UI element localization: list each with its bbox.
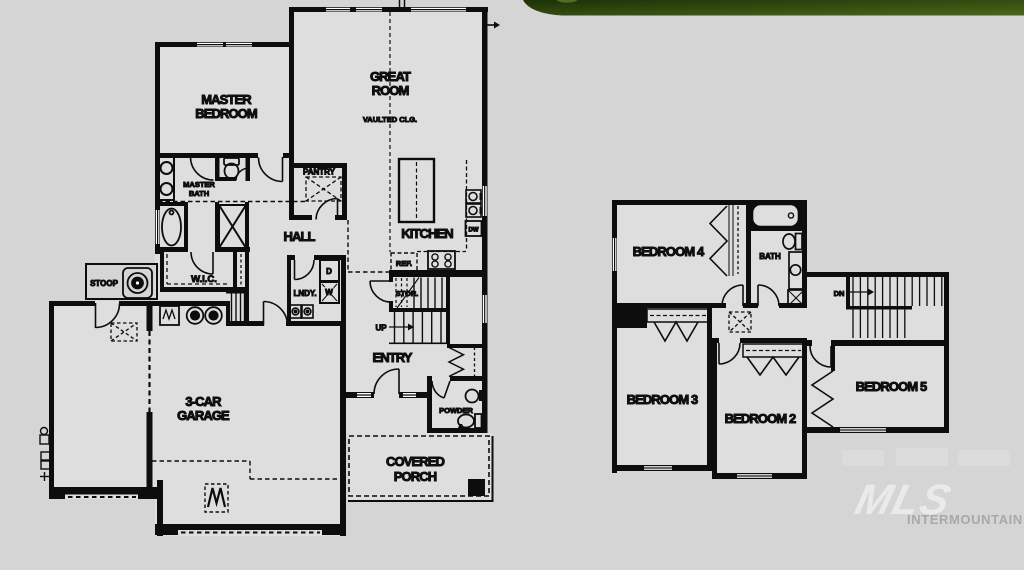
svg-text:UP: UP [375,324,387,333]
svg-text:PANTRY: PANTRY [303,168,336,177]
svg-text:ROOM: ROOM [372,83,409,98]
svg-text:COVERED: COVERED [386,454,445,469]
svg-text:W.I.C.: W.I.C. [191,274,217,285]
svg-text:DW: DW [469,228,479,234]
svg-text:MASTER: MASTER [201,92,252,107]
svg-text:STOOP: STOOP [90,279,119,288]
svg-text:INTERMOUNTAIN: INTERMOUNTAIN [907,512,1023,527]
svg-text:ENTRY: ENTRY [372,350,412,365]
svg-text:W: W [325,288,333,297]
svg-text:BEDROOM 2: BEDROOM 2 [725,411,796,426]
svg-text:MASTER: MASTER [183,180,215,189]
svg-text:BEDROOM: BEDROOM [195,106,257,121]
svg-text:KITCHEN: KITCHEN [401,226,453,241]
svg-text:REF.: REF. [396,259,412,268]
svg-text:DN: DN [834,289,845,298]
svg-text:BATH: BATH [759,252,781,261]
svg-text:3-CAR: 3-CAR [185,394,222,409]
svg-text:LNDY.: LNDY. [293,289,316,298]
svg-text:GARAGE: GARAGE [177,408,230,423]
svg-text:GREAT: GREAT [370,69,411,84]
svg-text:BEDROOM 4: BEDROOM 4 [633,244,705,259]
svg-text:STOR.: STOR. [396,289,419,298]
svg-text:BEDROOM 3: BEDROOM 3 [627,392,698,407]
svg-text:POWDER: POWDER [439,406,473,415]
svg-text:HALL: HALL [283,229,315,244]
svg-text:BATH: BATH [189,189,209,198]
svg-text:D: D [326,267,332,276]
svg-text:VAULTED CLG.: VAULTED CLG. [363,115,417,124]
svg-text:BEDROOM 5: BEDROOM 5 [856,379,927,394]
svg-text:PORCH: PORCH [394,469,437,484]
